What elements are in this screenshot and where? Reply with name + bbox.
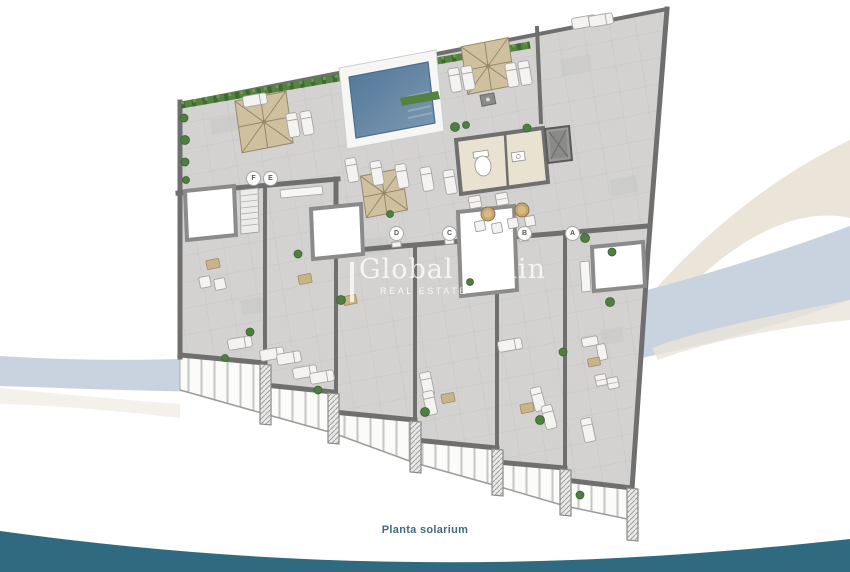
unit-marker-d: D [389,226,404,241]
bathroom-block [456,128,548,194]
sink-icon [511,151,525,162]
skylight [311,204,363,259]
skylight [592,242,645,291]
plan-caption: Planta solarium [0,524,850,536]
unit-marker-c-label: C [447,230,452,237]
floorplan-illustration [0,0,850,572]
unit-marker-b: B [517,226,532,241]
elevator-shaft [545,126,572,163]
swoosh-cream-left-faint [0,388,180,418]
unit-marker-e-label: E [268,175,273,182]
unit-marker-d-label: D [394,230,399,237]
unit-marker-e: E [263,171,278,186]
unit-marker-f-label: F [251,175,255,182]
skylight [185,186,236,240]
teal-footer-band [0,531,850,572]
floor-plan [178,9,667,541]
unit-marker-c: C [442,226,457,241]
unit-marker-f: F [246,171,261,186]
unit-marker-a: A [565,226,580,241]
stairs [240,188,259,234]
unit-marker-b-label: B [522,230,527,237]
floor-patch [240,297,264,315]
counter [580,261,591,292]
solarium-plan-image: F E D C B A Global Spain REAL ESTATE Pla… [0,0,850,572]
unit-marker-a-label: A [570,230,575,237]
floor-patch [600,327,624,345]
